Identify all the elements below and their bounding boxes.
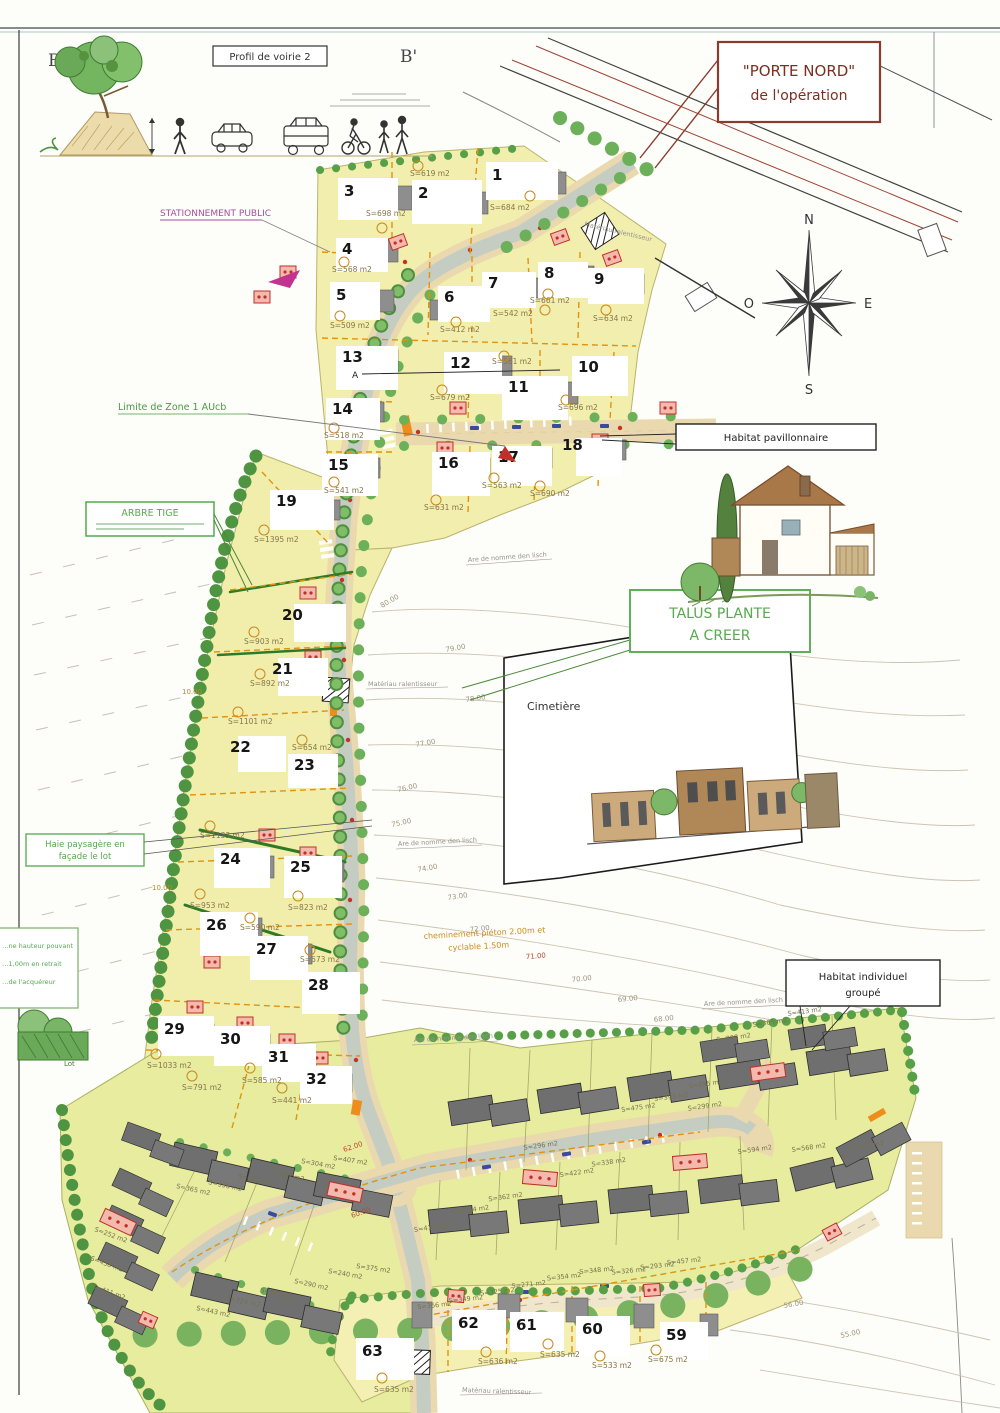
- svg-text:S=823 m2: S=823 m2: [288, 903, 328, 912]
- compass-south: S: [805, 383, 813, 398]
- callout-porte-nord: "PORTE NORD" de l'opération: [640, 42, 880, 168]
- svg-text:S=561 m2: S=561 m2: [492, 357, 532, 366]
- svg-text:S=541 m2: S=541 m2: [324, 486, 364, 495]
- svg-text:Limite de Zone 1 AUcb: Limite de Zone 1 AUcb: [118, 402, 226, 413]
- svg-text:S=661 m2: S=661 m2: [530, 296, 570, 305]
- svg-text:S=568 m2: S=568 m2: [332, 265, 372, 274]
- house-perspective-sketch: [681, 466, 878, 606]
- svg-text:12: 12: [450, 354, 471, 372]
- svg-text:S=675 m2: S=675 m2: [648, 1355, 688, 1364]
- car-sketch: [212, 124, 252, 152]
- svg-text:S=953 m2: S=953 m2: [190, 901, 230, 910]
- callout-stationnement: STATIONNEMENT PUBLIC: [160, 209, 330, 288]
- svg-text:80.00: 80.00: [379, 593, 400, 610]
- svg-text:75.00: 75.00: [391, 817, 412, 829]
- compass-north: N: [804, 213, 814, 228]
- svg-text:18: 18: [562, 436, 583, 454]
- svg-text:60: 60: [582, 1320, 603, 1338]
- tree-sketch: [55, 36, 142, 118]
- svg-text:59: 59: [666, 1326, 687, 1344]
- lot-area: S=684 m2: [490, 203, 530, 212]
- svg-text:16: 16: [438, 454, 459, 472]
- svg-text:8: 8: [544, 264, 554, 282]
- svg-text:71.00: 71.00: [526, 952, 547, 961]
- svg-text:S=412 m2: S=412 m2: [440, 325, 480, 334]
- svg-text:S=563 m2: S=563 m2: [482, 481, 522, 490]
- svg-text:70.00: 70.00: [571, 974, 592, 984]
- svg-text:63: 63: [362, 1342, 383, 1360]
- svg-text:61: 61: [516, 1316, 537, 1334]
- cemetery-label: Cimetière: [527, 700, 581, 713]
- svg-text:S=590 m2: S=590 m2: [240, 923, 280, 932]
- svg-text:31: 31: [268, 1048, 289, 1066]
- svg-text:19: 19: [276, 492, 297, 510]
- svg-text:"PORTE NORD": "PORTE NORD": [743, 62, 855, 80]
- svg-text:S=1101 m2: S=1101 m2: [228, 717, 273, 726]
- svg-text:…de l'acquéreur: …de l'acquéreur: [2, 978, 56, 986]
- svg-text:26: 26: [206, 916, 227, 934]
- svg-text:Are de nomme den lisch: Are de nomme den lisch: [704, 996, 783, 1008]
- svg-text:14: 14: [332, 400, 353, 418]
- svg-text:…ne hauteur pouvant: …ne hauteur pouvant: [2, 942, 73, 950]
- svg-text:Habitat individuel: Habitat individuel: [819, 972, 907, 983]
- svg-text:68.00: 68.00: [653, 1014, 674, 1024]
- svg-text:S=673 m2: S=673 m2: [300, 955, 340, 964]
- svg-text:S=698 m2: S=698 m2: [366, 209, 406, 218]
- svg-text:Haie paysagère en: Haie paysagère en: [45, 839, 125, 850]
- svg-text:5: 5: [336, 286, 346, 304]
- svg-text:55.00: 55.00: [840, 1328, 861, 1340]
- site-plan-page: { "profile": { "b": "B", "b_prime": "B'"…: [0, 0, 1000, 1413]
- svg-text:…1,00m en retrait: …1,00m en retrait: [2, 960, 62, 968]
- svg-text:25: 25: [290, 858, 311, 876]
- svg-text:Lot: Lot: [64, 1060, 75, 1068]
- svg-text:S=518 m2: S=518 m2: [324, 431, 364, 440]
- svg-text:69.00: 69.00: [617, 994, 638, 1004]
- lot-number: 1: [492, 166, 502, 184]
- svg-text:6: 6: [444, 288, 454, 306]
- compass-west: O: [744, 297, 754, 312]
- svg-text:de l'opération: de l'opération: [751, 88, 848, 104]
- svg-text:groupé: groupé: [845, 987, 880, 999]
- svg-text:62: 62: [458, 1314, 479, 1332]
- compass-east: E: [864, 297, 872, 312]
- cheminement-note: cheminement piéton 2.00m et cyclable 1.5…: [423, 924, 546, 953]
- talus-sketch: [40, 112, 152, 155]
- svg-text:Are de nomme den lisch: Are de nomme den lisch: [398, 836, 477, 848]
- svg-text:S=509 m2: S=509 m2: [330, 321, 370, 330]
- svg-text:73.00: 73.00: [447, 891, 468, 902]
- svg-text:S=654 m2: S=654 m2: [292, 743, 332, 752]
- tiny-notes: [330, 94, 430, 106]
- profile-title: Profil de voirie 2: [229, 52, 310, 63]
- person-sketch: [174, 119, 186, 154]
- section-a-marker: A: [352, 371, 359, 381]
- svg-text:cyclable 1.50m: cyclable 1.50m: [448, 940, 510, 952]
- svg-text:2: 2: [418, 184, 428, 202]
- svg-text:Habitat pavillonnaire: Habitat pavillonnaire: [724, 433, 828, 444]
- svg-text:S=1133 m2: S=1133 m2: [200, 831, 245, 840]
- svg-text:10: 10: [578, 358, 599, 376]
- truck-sketch: [284, 118, 328, 155]
- svg-text:10.00: 10.00: [152, 884, 172, 892]
- svg-text:10.00: 10.00: [182, 688, 202, 696]
- svg-text:S=441 m2: S=441 m2: [272, 1096, 312, 1105]
- svg-text:13: 13: [342, 348, 363, 366]
- svg-text:20: 20: [282, 606, 303, 624]
- svg-text:74.00: 74.00: [417, 863, 438, 874]
- svg-text:29: 29: [164, 1020, 185, 1038]
- callout-haie-left: …ne hauteur pouvant …1,00m en retrait …d…: [0, 928, 88, 1068]
- svg-text:28: 28: [308, 976, 329, 994]
- svg-text:S=1395 m2: S=1395 m2: [254, 535, 299, 544]
- svg-text:22: 22: [230, 738, 251, 756]
- svg-text:3: 3: [344, 182, 354, 200]
- svg-text:S=679 m2: S=679 m2: [430, 393, 470, 402]
- svg-text:A CREER: A CREER: [690, 628, 751, 644]
- svg-text:7: 7: [488, 274, 498, 292]
- svg-text:STATIONNEMENT PUBLIC: STATIONNEMENT PUBLIC: [160, 209, 271, 219]
- svg-text:4: 4: [342, 240, 352, 258]
- svg-text:S=542 m2: S=542 m2: [493, 309, 533, 318]
- svg-text:S=903 m2: S=903 m2: [244, 637, 284, 646]
- svg-text:TALUS PLANTE: TALUS PLANTE: [668, 606, 771, 622]
- svg-text:S=892 m2: S=892 m2: [250, 679, 290, 688]
- svg-text:façade le lot: façade le lot: [59, 852, 112, 862]
- cyclist-sketch: [342, 119, 370, 154]
- svg-text:S=533 m2: S=533 m2: [592, 1361, 632, 1370]
- svg-text:S=636 m2: S=636 m2: [478, 1357, 518, 1366]
- svg-text:24: 24: [220, 850, 241, 868]
- svg-text:79.00: 79.00: [445, 643, 466, 654]
- svg-text:11: 11: [508, 378, 529, 396]
- svg-text:76.00: 76.00: [397, 782, 418, 794]
- svg-text:9: 9: [594, 270, 604, 288]
- svg-text:77.00: 77.00: [415, 738, 436, 749]
- svg-text:21: 21: [272, 660, 293, 678]
- svg-text:27: 27: [256, 940, 277, 958]
- svg-text:S=1033 m2: S=1033 m2: [147, 1061, 192, 1070]
- svg-text:S=585 m2: S=585 m2: [242, 1076, 282, 1085]
- svg-text:Matériau ralentisseur: Matériau ralentisseur: [368, 680, 438, 688]
- svg-text:ARBRE TIGE: ARBRE TIGE: [121, 508, 178, 519]
- svg-text:S=635 m2: S=635 m2: [540, 1350, 580, 1359]
- svg-text:15: 15: [328, 456, 349, 474]
- svg-text:23: 23: [294, 756, 315, 774]
- svg-text:S=634 m2: S=634 m2: [593, 314, 633, 323]
- svg-text:S=631 m2: S=631 m2: [424, 503, 464, 512]
- hedge-sketch: Lot: [18, 1010, 88, 1068]
- svg-text:30: 30: [220, 1030, 241, 1048]
- svg-text:S=635 m2: S=635 m2: [374, 1385, 414, 1394]
- profile-strip: B B' Profil de voirie 2: [40, 36, 432, 156]
- svg-text:S=690 m2: S=690 m2: [530, 489, 570, 498]
- svg-text:S=791 m2: S=791 m2: [182, 1083, 222, 1092]
- svg-text:32: 32: [306, 1070, 327, 1088]
- compass-rose: N S E O: [744, 213, 872, 398]
- pedestrians-sketch: [379, 117, 408, 154]
- section-b-prime-marker: B': [400, 47, 417, 67]
